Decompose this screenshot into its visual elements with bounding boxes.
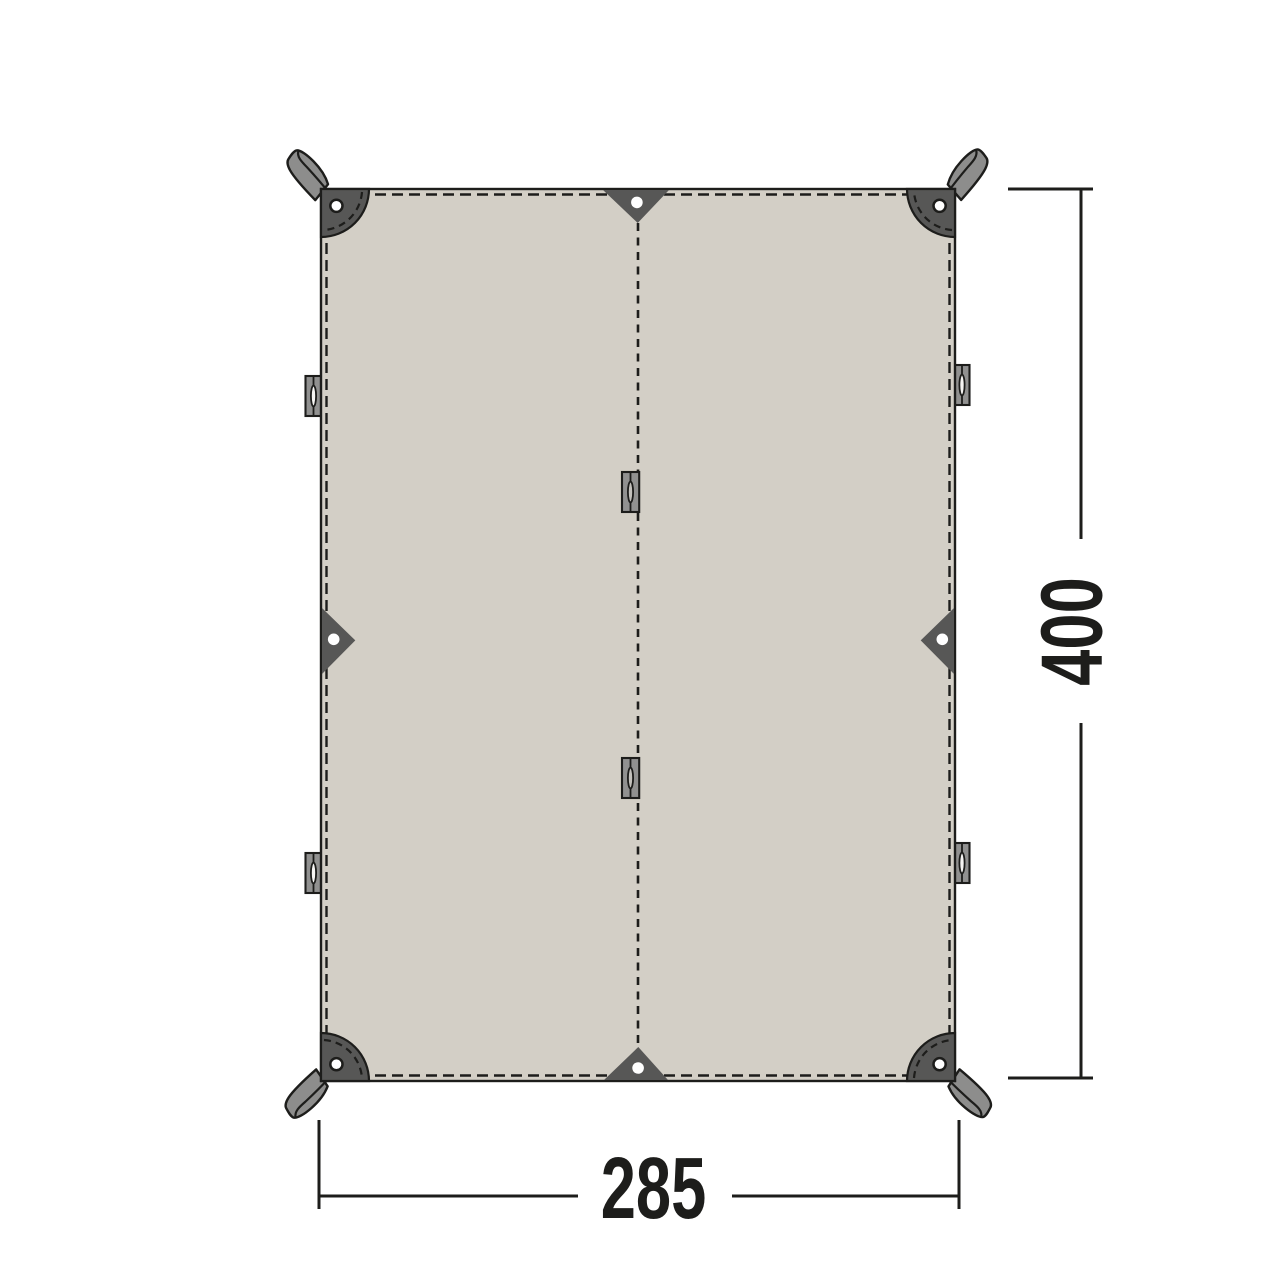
svg-text:400: 400 xyxy=(1023,577,1120,686)
svg-text:285: 285 xyxy=(601,1140,707,1237)
